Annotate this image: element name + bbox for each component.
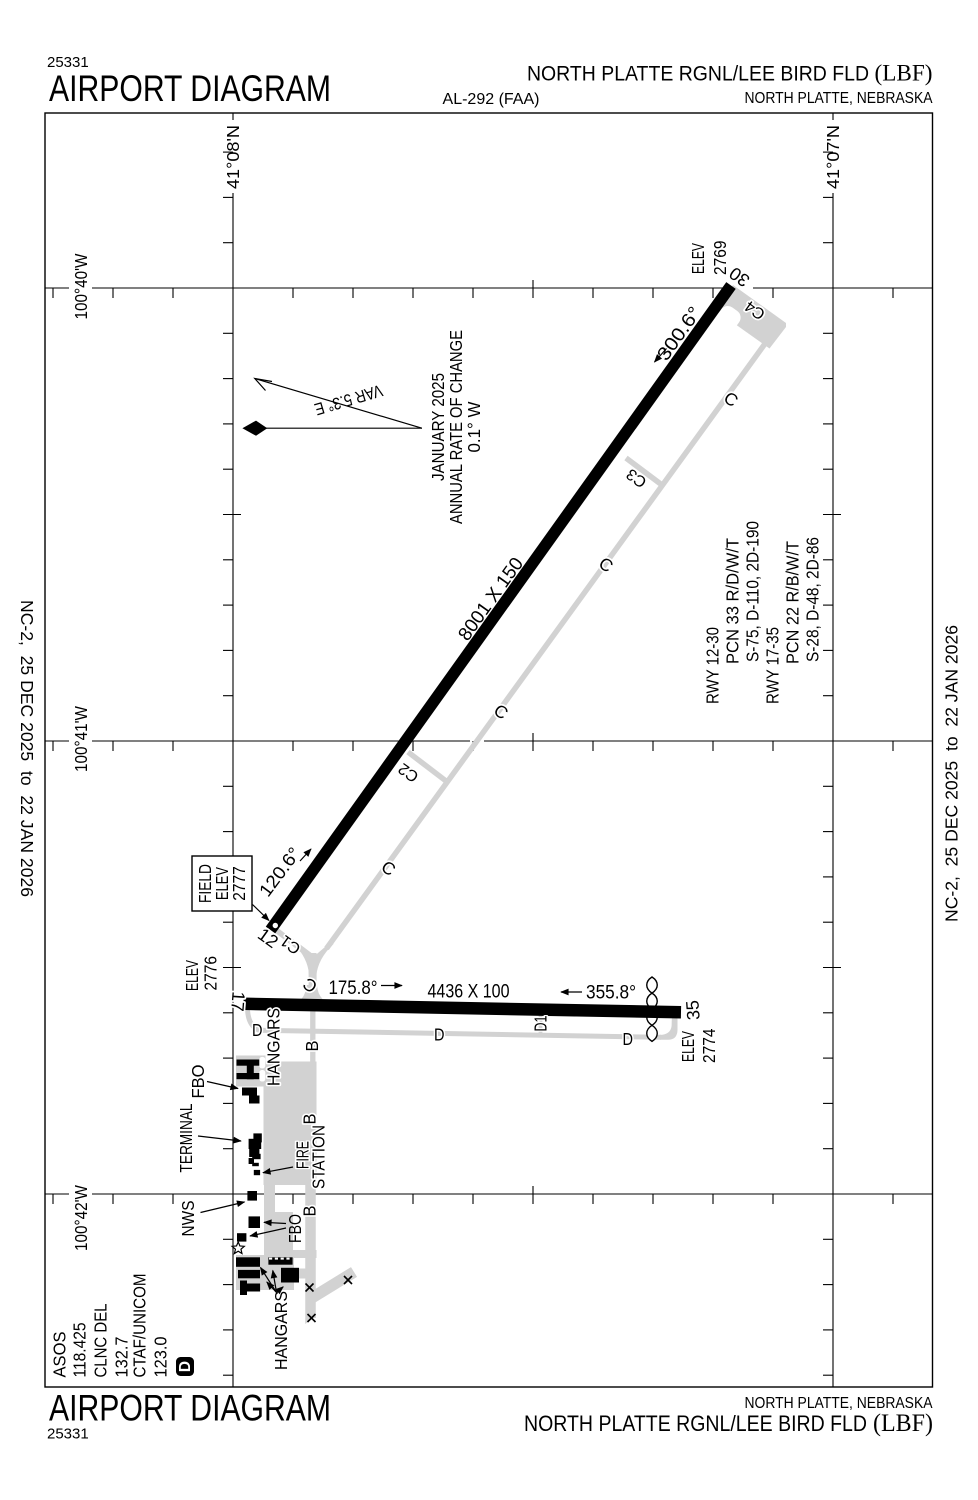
svg-text:B: B (300, 1114, 320, 1125)
svg-text:NC-2, 25 DEC 2025 to 22 JAN: NC-2, 25 DEC 2025 to 22 JAN 2026 (17, 600, 37, 897)
svg-text:B: B (302, 1041, 322, 1052)
svg-text:2776: 2776 (200, 956, 220, 991)
svg-text:35: 35 (682, 999, 703, 1020)
svg-text:41°08'N: 41°08'N (223, 125, 243, 189)
svg-text:FBO: FBO (188, 1065, 208, 1099)
svg-text:D1: D1 (531, 1016, 551, 1032)
svg-text:2769: 2769 (710, 241, 730, 276)
svg-text:AIRPORT DIAGRAM: AIRPORT DIAGRAM (49, 67, 331, 109)
svg-text:100°42'W: 100°42'W (71, 1185, 91, 1251)
svg-text:NORTH PLATTE RGNL/LEE BIRD FLD: NORTH PLATTE RGNL/LEE BIRD FLD (524, 1411, 867, 1436)
svg-text:ASOS: ASOS (50, 1332, 70, 1378)
svg-text:17: 17 (227, 991, 248, 1012)
svg-text:ELEV: ELEV (182, 960, 202, 991)
svg-text:STATION: STATION (309, 1125, 329, 1189)
svg-text:CTAF/UNICOM: CTAF/UNICOM (130, 1274, 150, 1378)
svg-text:(LBF): (LBF) (873, 1410, 933, 1437)
svg-text:FBO: FBO (285, 1214, 305, 1243)
svg-text:123.0: 123.0 (151, 1336, 171, 1377)
svg-text:(LBF): (LBF) (875, 61, 933, 86)
svg-text:AIRPORT DIAGRAM: AIRPORT DIAGRAM (49, 1387, 331, 1429)
svg-text:100°40'W: 100°40'W (71, 253, 91, 319)
svg-text:41°07'N: 41°07'N (823, 125, 843, 189)
svg-text:2774: 2774 (699, 1028, 719, 1063)
svg-text:S-75, D-110, 2D-190: S-75, D-110, 2D-190 (743, 521, 763, 662)
svg-text:PCN 22 R/B/W/T: PCN 22 R/B/W/T (783, 541, 803, 664)
svg-text:NWS: NWS (178, 1201, 198, 1237)
svg-text:RWY 12-30: RWY 12-30 (703, 627, 723, 704)
svg-text:132.7: 132.7 (112, 1337, 132, 1378)
svg-text:100°41'W: 100°41'W (71, 706, 91, 772)
svg-text:TERMINAL: TERMINAL (176, 1103, 196, 1172)
svg-text:25331: 25331 (47, 1426, 89, 1443)
svg-text:4436 X 100: 4436 X 100 (428, 981, 510, 1003)
svg-text:NC-2, 25 DEC 2025 to 22 JAN: NC-2, 25 DEC 2025 to 22 JAN 2026 (942, 625, 962, 922)
svg-text:NORTH PLATTE, NEBRASKA: NORTH PLATTE, NEBRASKA (745, 90, 934, 107)
svg-text:118.425: 118.425 (70, 1323, 90, 1378)
svg-text:HANGARS: HANGARS (271, 1291, 291, 1370)
svg-text:ELEV: ELEV (688, 243, 708, 274)
svg-text:NORTH PLATTE RGNL/LEE BIRD FLD: NORTH PLATTE RGNL/LEE BIRD FLD (527, 62, 869, 86)
svg-text:S-28, D-48, 2D-86: S-28, D-48, 2D-86 (803, 537, 823, 662)
svg-text:2777: 2777 (229, 866, 249, 901)
svg-text:ELEV: ELEV (678, 1031, 698, 1062)
svg-text:D: D (623, 1029, 634, 1049)
svg-text:355.8°: 355.8° (586, 982, 636, 1004)
svg-text:D: D (434, 1025, 445, 1045)
svg-text:D: D (252, 1020, 263, 1040)
svg-text:RWY 17-35: RWY 17-35 (763, 627, 783, 704)
svg-text:ANNUAL RATE OF CHANGE: ANNUAL RATE OF CHANGE (446, 330, 466, 524)
svg-text:D: D (177, 1361, 194, 1372)
svg-text:0.1° W: 0.1° W (464, 401, 484, 452)
svg-text:AL-292 (FAA): AL-292 (FAA) (443, 91, 540, 108)
svg-text:HANGARS: HANGARS (264, 1008, 284, 1086)
svg-text:175.8°: 175.8° (329, 977, 378, 999)
svg-text:CLNC DEL: CLNC DEL (91, 1303, 111, 1377)
svg-text:JANUARY 2025: JANUARY 2025 (428, 373, 448, 481)
svg-text:PCN 33 R/D/W/T: PCN 33 R/D/W/T (723, 538, 743, 664)
